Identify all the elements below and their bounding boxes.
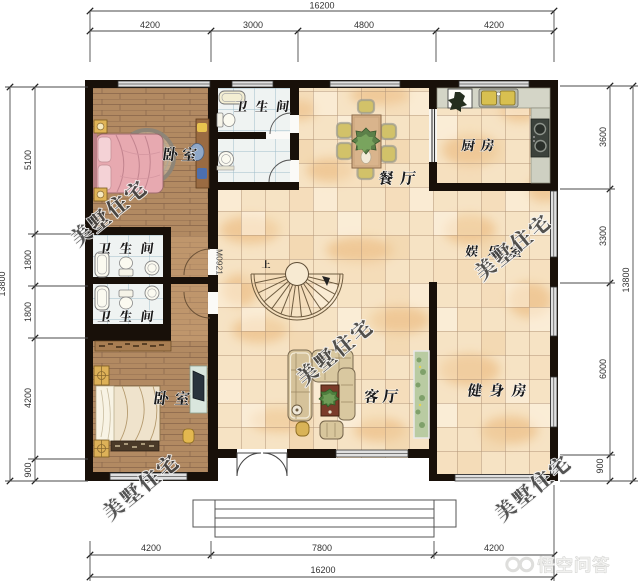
svg-text:4200: 4200	[141, 543, 161, 553]
svg-text:6000: 6000	[598, 359, 608, 379]
svg-text:4200: 4200	[484, 20, 504, 30]
svg-text:900: 900	[595, 458, 605, 473]
svg-text:4800: 4800	[354, 20, 374, 30]
svg-text:1800: 1800	[23, 250, 33, 270]
svg-text:5100: 5100	[23, 150, 33, 170]
svg-text:3300: 3300	[598, 226, 608, 246]
svg-text:7800: 7800	[312, 543, 332, 553]
svg-text:4200: 4200	[140, 20, 160, 30]
svg-text:16200: 16200	[309, 1, 334, 11]
svg-text:M0921: M0921	[215, 249, 225, 275]
svg-text:13800: 13800	[621, 267, 631, 292]
svg-text:16200: 16200	[310, 565, 335, 575]
svg-text:13800: 13800	[0, 271, 7, 296]
svg-text:4200: 4200	[484, 543, 504, 553]
svg-text:4200: 4200	[23, 388, 33, 408]
svg-text:3600: 3600	[598, 127, 608, 147]
svg-text:3000: 3000	[243, 20, 263, 30]
svg-text:1800: 1800	[23, 302, 33, 322]
svg-text:900: 900	[23, 462, 33, 477]
